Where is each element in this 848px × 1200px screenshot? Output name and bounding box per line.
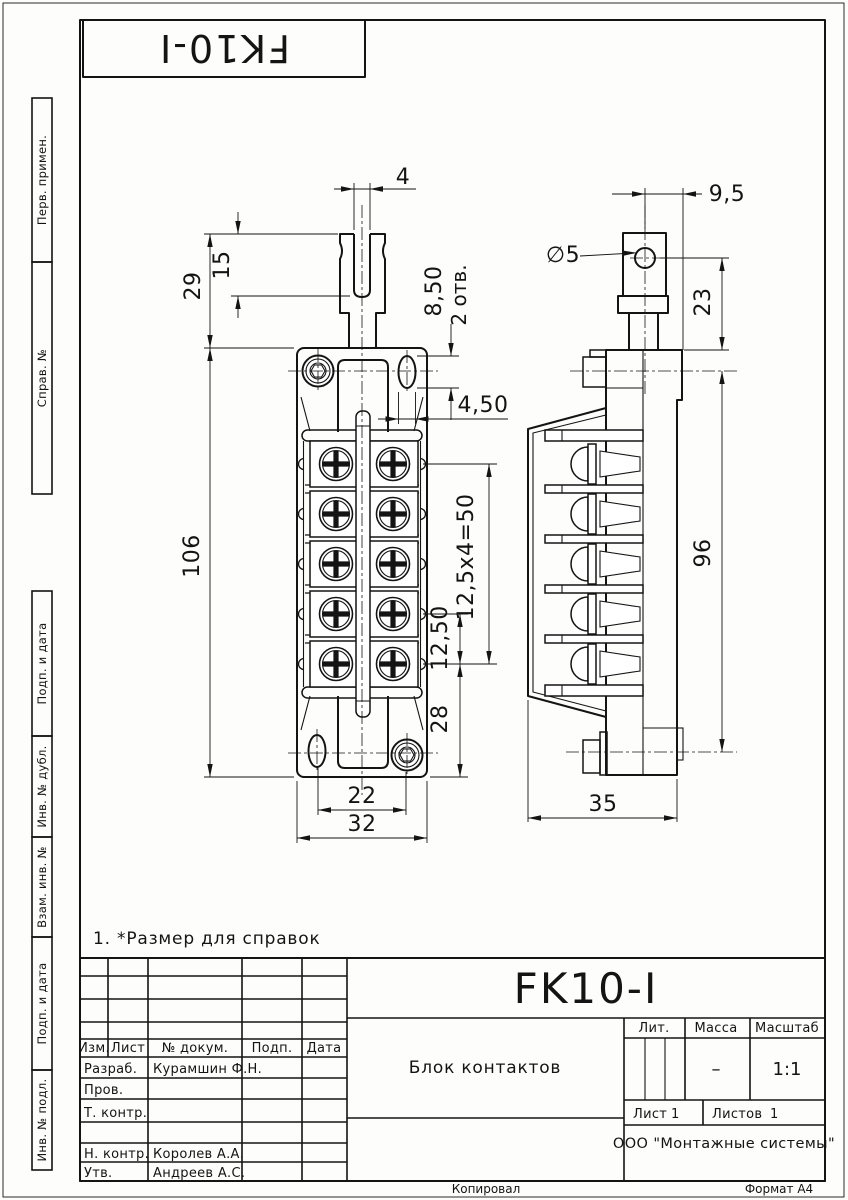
sheet-label: Лист [633, 1107, 667, 1122]
format-label: Формат А4 [745, 1182, 813, 1196]
bottom-boss [583, 740, 600, 773]
dim-depth: 35 [589, 792, 618, 817]
margin-stamp-label: Инв. № дубл. [35, 745, 49, 827]
sheets-label: Листов [712, 1107, 762, 1122]
company-name: ООО "Монтажные системы" [613, 1136, 835, 1152]
row-razrab-label: Разраб. [84, 1062, 137, 1077]
tab-left-edge [340, 234, 354, 349]
part-name: Блок контактов [409, 1058, 562, 1078]
dim-slot-width: 4 [396, 165, 411, 190]
top-boss [583, 357, 606, 387]
dim-mount-hole-qty: 2 отв. [447, 264, 471, 325]
margin-stamp-label: Взам. инв. № [35, 846, 49, 928]
dim-tab-to-body: 23 [691, 288, 716, 317]
dim-body-height: 106 [180, 534, 205, 578]
header-izm: Изм. [78, 1041, 110, 1056]
drawing-sheet: FK10-I Перв. примен. Справ. № Подп. и да… [0, 0, 848, 1200]
title-block: Изм. Лист № докум. Подп. Дата Разраб. Ку… [78, 958, 835, 1181]
massa-value: – [712, 1059, 721, 1080]
dim-terminal-pitch: 12,50 [428, 605, 453, 670]
dim-mount-span: 96 [691, 539, 716, 568]
row-nkontr-label: Н. контр. [84, 1147, 149, 1162]
margin-stamps: Перв. примен. Справ. № Подп. и дата Инв.… [32, 98, 52, 1170]
dim-mount-spacing: 22 [348, 784, 377, 809]
dim-tab-offset: 9,5 [709, 182, 746, 207]
dim-hole-dia: ∅5 [546, 243, 580, 268]
title-designation: FK10-I [514, 964, 659, 1013]
center-bar [356, 411, 370, 717]
massa-label: Масса [695, 1021, 738, 1036]
dim-slot-depth: 15 [210, 251, 235, 280]
dim-terminal-pitch-total: 12,5x4=50 [454, 494, 479, 621]
margin-stamp-label: Подп. и дата [35, 623, 49, 705]
note-text: 1. *Размер для справок [93, 929, 321, 949]
lit-label: Лит. [638, 1021, 669, 1036]
scale-value: 1:1 [773, 1059, 802, 1080]
side-tab [618, 233, 668, 350]
masshtab-label: Масштаб [755, 1021, 819, 1036]
top-designation-stamp: FK10-I [83, 20, 365, 77]
footer-labels: Копировал Формат А4 [452, 1182, 813, 1196]
row-prov-label: Пров. [84, 1083, 123, 1098]
tab-right-edge [370, 234, 385, 349]
margin-stamp-label: Инв. № подл. [35, 1079, 49, 1162]
sheets-value: 1 [770, 1107, 779, 1122]
dim-bottom-offset: 28 [428, 705, 453, 734]
header-podp: Подп. [252, 1041, 293, 1056]
note: 1. *Размер для справок [93, 929, 321, 949]
header-list: Лист [111, 1041, 145, 1056]
header-dokum: № докум. [162, 1041, 228, 1056]
dimensions-side: ∅5 9,5 23 96 35 [528, 182, 745, 822]
sheet-value: 1 [671, 1107, 680, 1122]
margin-stamp-label: Справ. № [35, 349, 49, 407]
dim-mount-hole-height: 8,50 [422, 266, 447, 317]
top-designation-text: FK10-I [158, 26, 290, 70]
copied-label: Копировал [452, 1182, 521, 1196]
row-razrab-name: Курамшин Ф.Н. [153, 1062, 262, 1077]
dim-tab-height: 29 [181, 272, 206, 301]
row-nkontr-name: Королев А.А. [153, 1147, 244, 1162]
row-utv-label: Утв. [84, 1166, 113, 1181]
margin-stamp-label: Перв. примен. [35, 135, 49, 225]
row-utv-name: Андреев А.С. [153, 1166, 245, 1181]
front-view [288, 205, 438, 795]
header-data: Дата [307, 1041, 342, 1056]
row-tkontr-label: Т. контр. [83, 1106, 147, 1121]
dim-body-width: 32 [348, 812, 377, 837]
dim-mount-hole-width: 4,50 [458, 393, 509, 418]
margin-stamp-label: Подп. и дата [35, 963, 49, 1045]
